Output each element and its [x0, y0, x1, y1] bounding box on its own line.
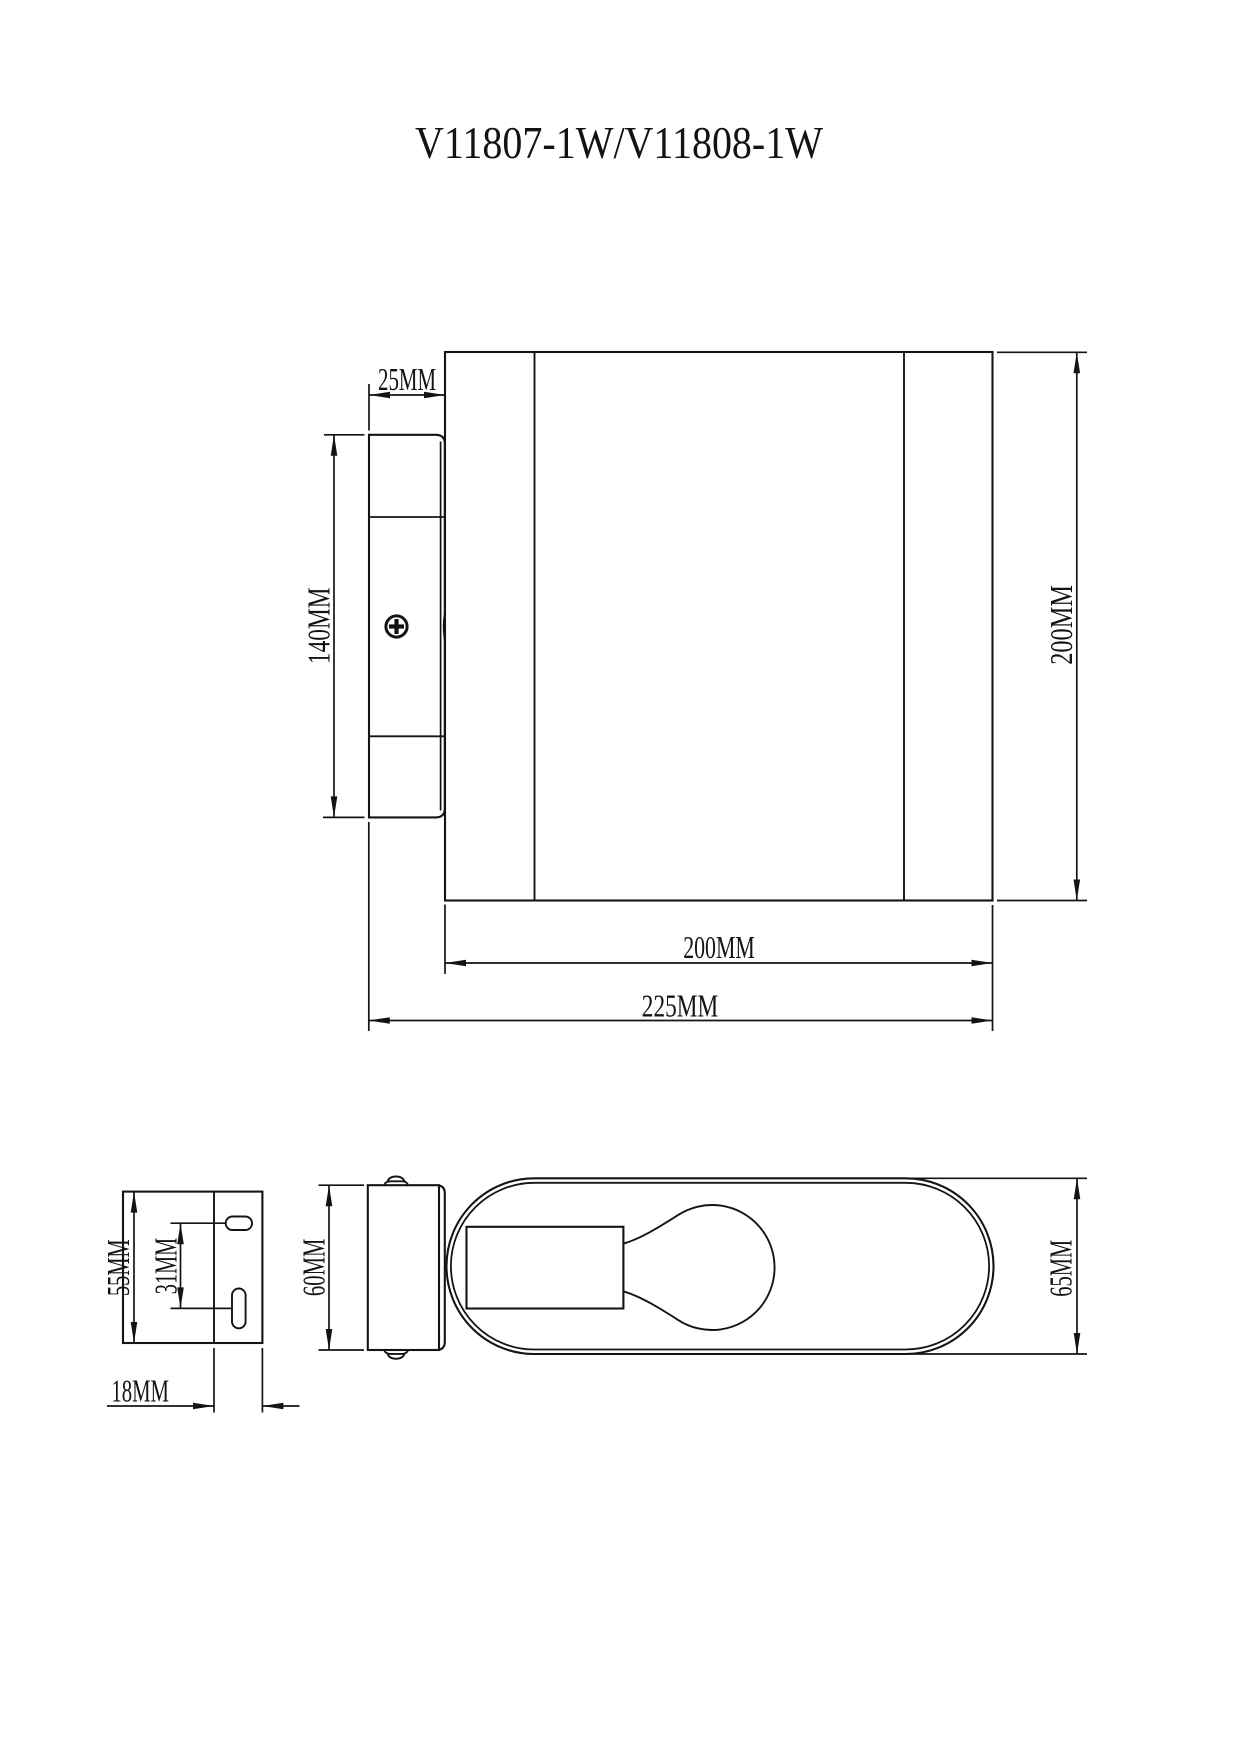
svg-text:60MM: 60MM [295, 1239, 331, 1296]
svg-text:65MM: 65MM [1043, 1240, 1079, 1297]
svg-text:31MM: 31MM [148, 1238, 184, 1294]
svg-text:V11807-1W/V11808-1W: V11807-1W/V11808-1W [415, 117, 824, 168]
svg-text:200MM: 200MM [1043, 585, 1079, 665]
svg-text:55MM: 55MM [100, 1239, 136, 1296]
svg-text:18MM: 18MM [111, 1373, 169, 1409]
svg-text:200MM: 200MM [683, 929, 755, 965]
svg-text:25MM: 25MM [378, 361, 436, 397]
svg-text:140MM: 140MM [301, 588, 337, 665]
svg-text:225MM: 225MM [642, 988, 718, 1024]
